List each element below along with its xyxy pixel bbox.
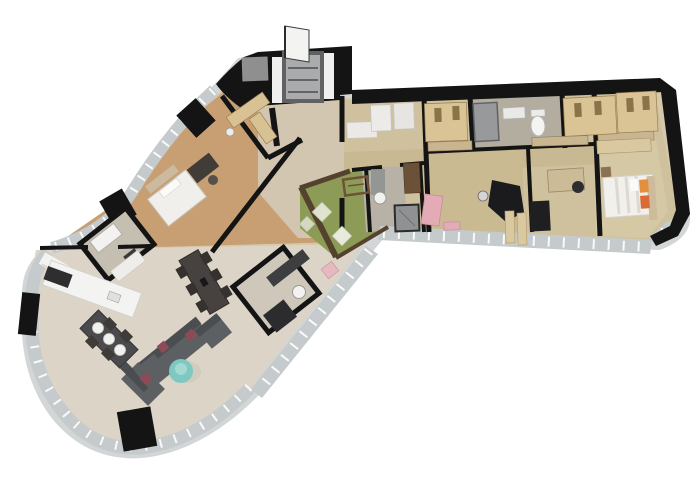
- closet-hall-1: [424, 102, 467, 141]
- bed-pillow-orange: [639, 179, 649, 193]
- powder-partition: [371, 169, 385, 195]
- wardrobe-brown: [403, 163, 421, 194]
- bed-pillow-red: [640, 195, 650, 209]
- door-panel-3: [394, 103, 415, 130]
- nightstand: [601, 167, 612, 178]
- closet-slot-3a: [626, 98, 634, 112]
- entry-door-leaf: [285, 26, 309, 62]
- closet-hall-2: [563, 96, 617, 137]
- plate-3: [115, 345, 126, 356]
- powder-sink: [374, 192, 386, 204]
- walkin-table: [226, 128, 234, 136]
- closet-slot-2b: [594, 101, 602, 115]
- bedroom-closet-band: [597, 138, 652, 154]
- wall-corner-bottom-tip: [117, 406, 157, 451]
- door-panel-2: [371, 105, 392, 132]
- wardrobe-wall-2: [532, 136, 588, 147]
- kitchen-wall-top-a: [40, 247, 88, 248]
- closet-hall-3: [616, 91, 658, 133]
- column-tan-2: [517, 213, 527, 245]
- closet-slot-1b: [452, 106, 459, 120]
- desk2-chair: [208, 175, 218, 185]
- pouf-top: [175, 363, 187, 375]
- elevator-jamb-left: [272, 57, 282, 103]
- shower-main-bath: [473, 102, 499, 141]
- closet-slot-3b: [642, 96, 650, 110]
- wardrobe-wall-1: [428, 141, 472, 152]
- entry-side-panel: [242, 57, 269, 82]
- cabinet-black: [529, 200, 551, 231]
- study-chair: [572, 181, 584, 193]
- closet-slot-1a: [434, 108, 441, 122]
- plate-1: [93, 323, 104, 334]
- floor-plan-rendering: [0, 0, 700, 500]
- kitchen-wall-top-b: [118, 246, 150, 247]
- guest-bath-sink: [293, 286, 306, 299]
- plate-2: [104, 334, 115, 345]
- piano-stool: [478, 191, 488, 201]
- bench-pink: [444, 222, 460, 231]
- column-tan-1: [505, 211, 515, 243]
- chaise-pink: [421, 194, 443, 226]
- bath-sink-counter: [503, 107, 526, 119]
- bed-pillow-white: [630, 179, 639, 192]
- elevator-jamb-right: [324, 53, 334, 99]
- closet-slot-2a: [574, 103, 582, 117]
- floor-plan-page: [0, 0, 700, 500]
